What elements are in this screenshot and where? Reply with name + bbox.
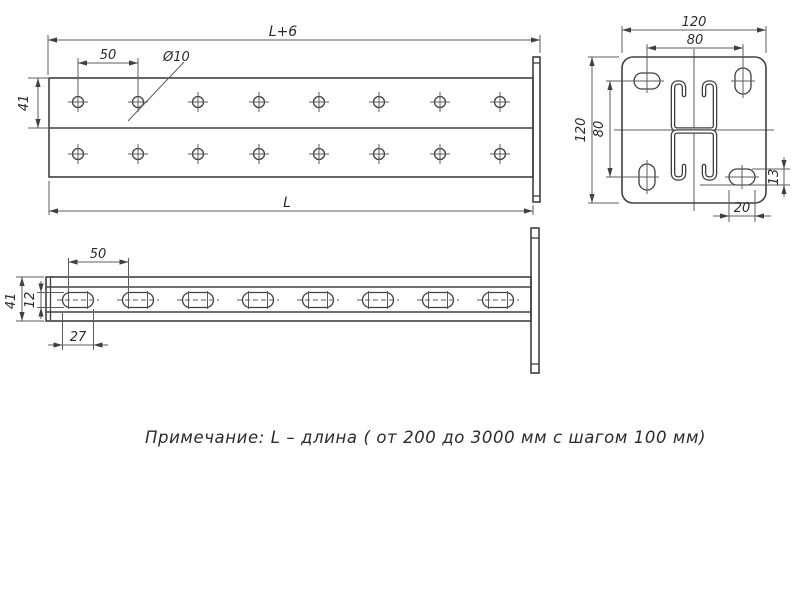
dim-length: L <box>49 181 533 215</box>
dim-hole-dia-label: Ø10 <box>162 50 190 65</box>
hole-row-lower <box>68 144 510 164</box>
dim-height-41-label: 41 <box>17 95 32 112</box>
dim-12-label: 12 <box>23 292 38 309</box>
dim-80v-label: 80 <box>592 121 607 138</box>
dim-slot-pitch-vertical: 80 <box>592 81 637 177</box>
dim-plate-120v-label: 120 <box>574 118 589 143</box>
plate-slot-top-left <box>630 69 664 93</box>
strut-slotted-side-view: 50 41 12 27 <box>4 228 539 373</box>
dim-hole-diameter: Ø10 <box>128 50 190 121</box>
dim-slot-length: 27 <box>48 309 108 350</box>
plate-slot-top-right <box>731 64 755 98</box>
dim-hole-pitch-label: 50 <box>100 48 117 63</box>
dim-20-label: 20 <box>734 201 751 216</box>
end-plate-view: 120 80 120 80 <box>574 15 790 222</box>
dim-hole-pitch: 50 <box>78 48 138 96</box>
dim-slot-pitch: 50 <box>69 247 129 297</box>
slot-row <box>57 291 519 309</box>
dim-l6-label: L+6 <box>269 24 298 40</box>
dim-27-label: 27 <box>70 330 87 345</box>
end-plate-edge-top <box>533 57 540 202</box>
dim-height-41b-label: 41 <box>4 293 19 310</box>
dim-l-label: L <box>283 195 291 211</box>
dim-slot-pitch-horizontal: 80 <box>647 33 743 71</box>
drawing-canvas: L+6 50 Ø10 41 <box>0 0 800 600</box>
dim-total-length: L+6 <box>48 24 540 75</box>
dim-plate-120h-label: 120 <box>682 15 707 30</box>
note-text: Примечание: L – длина ( от 200 до 3000 м… <box>145 428 706 447</box>
technical-drawing: L+6 50 Ø10 41 <box>0 0 800 600</box>
dim-plate-slot-length: 20 <box>713 190 771 222</box>
end-plate-edge-bottom <box>531 228 539 373</box>
plate-slot-bottom-left <box>635 160 659 194</box>
dim-13-label: 13 <box>767 169 782 186</box>
dim-height-top-view: 41 <box>17 78 50 128</box>
dim-slot-pitch-50-label: 50 <box>90 247 107 262</box>
strut-face-view: L+6 50 Ø10 41 <box>17 24 540 215</box>
hole-row-upper <box>68 92 510 112</box>
dim-80h-label: 80 <box>687 33 704 48</box>
